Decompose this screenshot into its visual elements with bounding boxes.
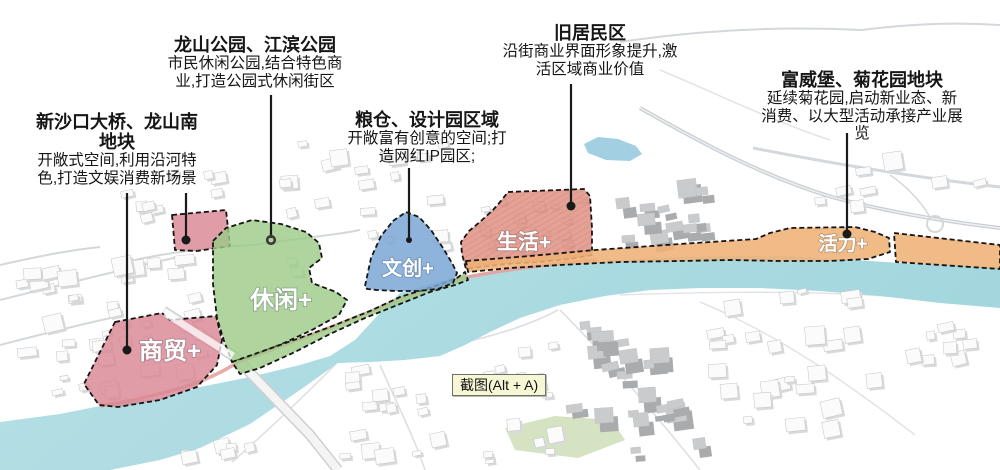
annotation-title: 旧居民区 <box>494 23 686 43</box>
leader-dot-vitality <box>843 230 852 239</box>
screenshot-hotkey-tooltip: 截图(Alt + A) <box>452 374 546 396</box>
annotation-title: 富威堡、菊花园地块 <box>759 70 965 90</box>
annotation-body: 览 <box>759 125 965 143</box>
annotation-title: 粮仓、设计园区域 <box>340 110 514 130</box>
annotation-jiujuminqu: 旧居民区 沿街商业界面形象提升,激 活区域商业价值 <box>494 23 686 78</box>
annotation-body: 业,打造公园式休闲街区 <box>159 73 351 91</box>
zone-label-leisure: 休闲+ <box>249 287 312 314</box>
lake <box>584 137 642 161</box>
annotation-xinshakou: 新沙口大桥、龙山南 地块 开敞式空间,利用沿河特 色,打造文娱消费新场景 <box>31 112 203 187</box>
annotation-body: 开敞式空间,利用沿河特 <box>31 152 203 170</box>
annotation-body: 市民休闲公园,结合特色商 <box>159 55 351 73</box>
zone-vitality-east[interactable] <box>894 233 1000 269</box>
annotation-liangcang: 粮仓、设计园区域 开敞富有创意的空间;打 造网红IP园区; <box>340 110 514 165</box>
zone-label-commerce: 商贸+ <box>139 337 201 365</box>
leader-dot-commerce <box>123 346 132 355</box>
annotation-title: 新沙口大桥、龙山南 <box>31 112 203 132</box>
planning-map-screenshot: 商贸+ 休闲+ 文创+ 生活+ 活力+ 新沙口大桥、龙山南 地块 开敞式空间, <box>0 0 1000 470</box>
annotation-title: 龙山公园、江滨公园 <box>159 35 351 55</box>
annotation-body: 活区域商业价值 <box>494 61 686 79</box>
leader-dot-life <box>567 202 576 211</box>
annotation-body: 沿街商业界面形象提升,激 <box>494 43 686 61</box>
annotation-body: 开敞富有创意的空间;打 <box>340 130 514 148</box>
annotation-body: 造网红IP园区; <box>340 148 514 166</box>
annotation-body: 消费、以大型活动承接产业展 <box>759 108 965 126</box>
annotation-body: 色,打造文娱消费新场景 <box>31 170 203 188</box>
annotation-fuweibao: 富威堡、菊花园地块 延续菊花园,启动新业态、新 消费、以大型活动承接产业展 览 <box>759 70 965 143</box>
zone-label-culture: 文创+ <box>382 256 434 280</box>
annotation-longshan-park: 龙山公园、江滨公园 市民休闲公园,结合特色商 业,打造公园式休闲街区 <box>159 35 351 90</box>
zone-label-life: 生活+ <box>497 230 551 254</box>
annotation-title: 地块 <box>31 132 203 152</box>
annotation-body: 延续菊花园,启动新业态、新 <box>759 90 965 108</box>
leader-dot-bridge-block <box>182 236 191 245</box>
leader-dot-culture <box>406 237 412 243</box>
